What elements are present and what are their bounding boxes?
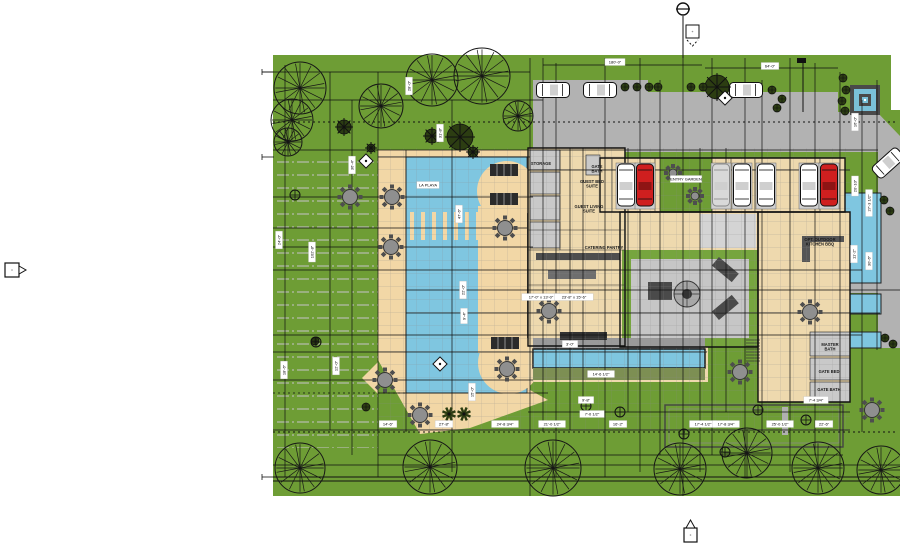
dimension-text: 18'-6" — [282, 364, 287, 375]
dimension-label: 3'-0" — [562, 341, 578, 348]
plan-corner-notch — [891, 40, 900, 110]
dimension-label: 17'-8 3/4" — [713, 421, 740, 428]
dimension-label: 9'-8" — [578, 397, 594, 404]
dimension-text: 3'-0" — [566, 342, 575, 347]
room-label: GATEBATH — [591, 164, 602, 173]
car-white — [618, 164, 635, 206]
tree-wireframe — [654, 443, 706, 495]
dimension-text: 22'-6" — [819, 422, 830, 427]
dimension-label: 14'-6 1/2" — [588, 371, 615, 378]
dimension-text: 23'-8" x 15'-6" — [562, 295, 587, 300]
drain-symbol — [679, 429, 689, 439]
table-with-chairs — [408, 403, 433, 428]
dimension-label: 36'-4" — [349, 156, 356, 174]
lounge-chairs — [490, 193, 518, 205]
table-with-chairs — [379, 235, 404, 260]
dimension-label: 16'-0" — [852, 113, 859, 131]
dimension-label: 30'-6" — [866, 252, 873, 270]
room-label: STORAGE — [531, 161, 551, 166]
tree-wireframe — [274, 128, 302, 156]
shrub — [621, 83, 629, 91]
shrub — [654, 83, 662, 91]
dimension-text: 20'-10" — [853, 179, 858, 192]
dimension-label: 21'-0 1/2" — [539, 421, 566, 428]
dimension-text: 7'-4 3/4" — [809, 398, 824, 403]
tree-wireframe — [503, 101, 533, 131]
table-with-chairs — [380, 185, 405, 210]
room-label: GATE BED — [819, 369, 840, 374]
dimension-text: 27'-8" — [439, 422, 450, 427]
dimension-label: 23'-8" x 15'-6" — [555, 294, 594, 301]
dimension-text: 102'-8" — [310, 245, 315, 258]
car-white — [730, 83, 763, 98]
shrub — [839, 74, 847, 82]
dimension-text: 31'-8" — [438, 127, 443, 138]
table-with-chairs — [493, 216, 518, 241]
tree-wireframe — [792, 442, 844, 494]
shrub — [778, 95, 786, 103]
table-with-chairs — [537, 299, 562, 324]
fountain — [850, 85, 880, 115]
table-with-chairs — [495, 357, 520, 382]
dimension-text: 64'-0" — [765, 64, 776, 69]
tree-wireframe — [275, 443, 325, 493]
dimension-text: 21'-0 1/2" — [544, 422, 561, 427]
dimension-text: 7'-0 1/2" — [585, 412, 600, 417]
table-with-chairs — [860, 398, 885, 423]
dimension-label: 25'-0 1/2" — [767, 421, 794, 428]
dimension-text: 16'-0" — [853, 116, 858, 127]
shrub — [687, 83, 695, 91]
lounge-chairs — [491, 337, 519, 349]
dimension-label: 12'-0" — [333, 357, 340, 375]
shrub — [633, 83, 641, 91]
dimension-label: 18'-6" — [281, 361, 288, 379]
dimension-text: 14'-6" — [383, 422, 394, 427]
table-with-chairs — [338, 185, 363, 210]
dimension-text: 17'-0" x 13'-0" — [529, 295, 554, 300]
shrub — [768, 86, 776, 94]
drain-symbol — [720, 447, 730, 457]
shrub — [886, 207, 894, 215]
dimension-label: 24'-8 3/4" — [492, 421, 519, 428]
dimension-label: 20'-10" — [852, 176, 859, 196]
tree-wireframe — [525, 440, 581, 496]
dimension-text: 25'-0 1/2" — [772, 422, 789, 427]
car-white — [537, 83, 570, 98]
room-label: OPT. OUTDOORKITCHEN BBQ — [804, 237, 835, 246]
table-with-chairs — [686, 187, 704, 205]
tree-leafy — [335, 118, 353, 136]
dimension-text: 14'-6 1/2" — [593, 372, 610, 377]
dimension-label: 15'-0" — [469, 383, 476, 401]
shrub — [362, 403, 370, 411]
dimension-label: 47'-6" — [456, 205, 463, 223]
dimension-text: 12'-0" — [334, 360, 339, 371]
tree-wireframe — [406, 54, 458, 106]
table-with-chairs — [798, 300, 823, 325]
shrub — [773, 104, 781, 112]
tree-wireframe — [454, 48, 510, 104]
car-white — [801, 164, 818, 206]
dimension-text: 28'-0" — [407, 80, 412, 91]
dimension-text: 24'-8 3/4" — [497, 422, 514, 427]
shrub — [842, 86, 850, 94]
tree-leafy — [365, 142, 377, 154]
shrub — [645, 83, 653, 91]
shrub — [880, 196, 888, 204]
car-white — [584, 83, 617, 98]
drain-symbol — [801, 415, 811, 425]
shrub — [838, 97, 846, 105]
dimension-text: 27'-3 1/2" — [867, 194, 872, 211]
shrub — [881, 334, 889, 342]
dimension-label: 27'-8" — [435, 421, 453, 428]
dimension-text: LA PLAYA — [419, 183, 437, 188]
dimension-text: 17'-4 1/2" — [695, 422, 712, 427]
dimension-label: 14'-6" — [379, 421, 397, 428]
table-with-chairs — [373, 368, 398, 393]
shrub — [889, 340, 897, 348]
drain-symbol — [753, 405, 763, 415]
dimension-label: 16'-2" — [609, 421, 627, 428]
dimension-text: 30'-6" — [867, 255, 872, 266]
dimension-text: ENTRY GARDEN — [670, 177, 702, 182]
car-red — [821, 164, 838, 206]
dimension-label: 180'-0" — [605, 59, 625, 66]
dimension-label: 27'-3 1/2" — [866, 190, 873, 217]
car-white — [734, 164, 751, 206]
tree-leafy — [466, 145, 480, 159]
dimension-text: 24'-0" — [277, 234, 282, 245]
table-with-chairs — [728, 360, 753, 385]
dimension-label: 24'-0" — [276, 231, 283, 249]
dimension-label: 22'-0" — [460, 281, 467, 299]
drain-symbol — [615, 407, 625, 417]
dimension-label: 7'-0 1/2" — [580, 411, 605, 418]
dimension-text: 16'-2" — [613, 422, 624, 427]
dimension-text: 17'-8 3/4" — [718, 422, 735, 427]
car-white — [758, 164, 775, 206]
dimension-text: 47'-6" — [457, 208, 462, 219]
tree-wireframe — [403, 440, 457, 494]
car-ghost — [713, 164, 730, 206]
room-label: GATE BATH — [817, 387, 840, 392]
dimension-label: 22'-6" — [815, 421, 833, 428]
room-label: CATERING PANTRY — [585, 245, 624, 250]
dimension-text: 15'-0" — [470, 386, 475, 397]
drain-symbol — [290, 190, 300, 200]
dimension-label: ENTRY GARDEN — [670, 176, 702, 183]
dimension-label: 7'-4 3/4" — [804, 397, 829, 404]
dimension-label: 102'-8" — [309, 242, 316, 262]
dimension-label: 17'-0" x 13'-0" — [522, 294, 561, 301]
lounge-chairs — [490, 164, 518, 176]
site-plan-canvas: 24'-0"18'-6"102'-8"12'-0"36'-4"28'-0"31'… — [0, 0, 900, 547]
tree-wireframe — [359, 84, 403, 128]
shrub — [699, 83, 707, 91]
dimension-label: 64'-0" — [761, 63, 779, 70]
drain-symbol — [311, 337, 321, 347]
shrub — [841, 107, 849, 115]
car-red — [637, 164, 654, 206]
dimension-label: LA PLAYA — [417, 182, 439, 189]
dimension-text: 9'-4" — [462, 311, 467, 320]
dimension-text: 9'-8" — [582, 398, 591, 403]
dimension-text: 11'-2" — [852, 248, 857, 258]
dimension-label: 9'-4" — [461, 308, 468, 324]
dimension-text: 36'-4" — [350, 159, 355, 170]
dimension-text: 22'-0" — [461, 284, 466, 295]
dimension-label: 11'-2" — [851, 245, 858, 263]
dimension-label: 31'-8" — [437, 124, 444, 142]
dimension-text: 180'-0" — [609, 60, 622, 65]
site-plan-screenshot: 24'-0"18'-6"102'-8"12'-0"36'-4"28'-0"31'… — [0, 0, 900, 547]
dimension-label: 28'-0" — [406, 77, 413, 95]
